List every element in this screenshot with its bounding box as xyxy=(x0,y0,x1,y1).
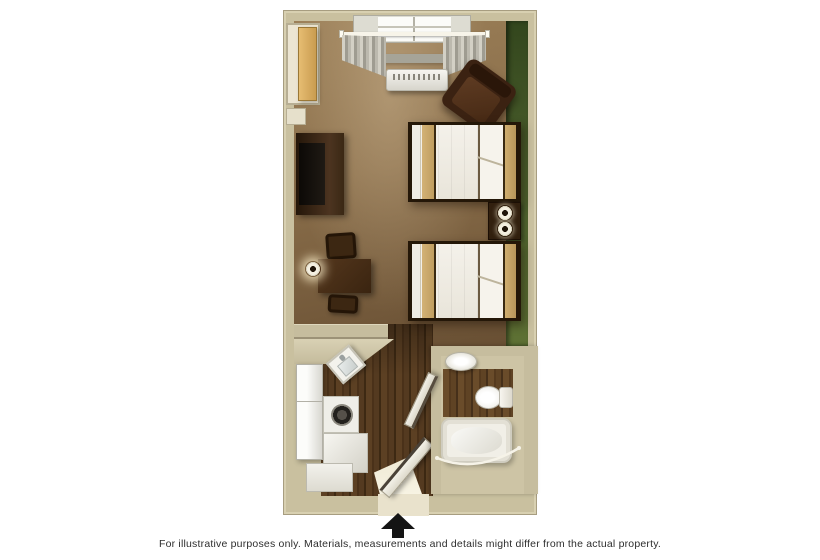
stove xyxy=(323,396,359,433)
table-lamp-icon xyxy=(497,221,513,237)
bed-head-band xyxy=(503,244,516,318)
refrigerator xyxy=(296,364,323,460)
desk xyxy=(318,259,371,293)
television xyxy=(299,143,325,205)
floor-plan xyxy=(283,10,537,515)
curtain-rod xyxy=(341,32,488,36)
vanity-sink xyxy=(445,352,477,371)
desk-lamp-icon xyxy=(305,261,321,277)
bed-accent-band xyxy=(422,125,436,199)
bed-head-band xyxy=(503,125,516,199)
bed-pillows xyxy=(478,125,503,199)
table-lamp-icon xyxy=(497,205,513,221)
base-cabinet xyxy=(306,463,353,492)
burner-icon xyxy=(331,404,353,426)
bed-foot-runner xyxy=(412,125,421,199)
bed-duvet xyxy=(438,125,478,199)
bed-2 xyxy=(408,241,521,321)
ac-unit xyxy=(386,69,448,91)
bed-1 xyxy=(408,122,521,202)
floor-plan-image: For illustrative purposes only. Material… xyxy=(0,0,820,560)
desk-chair xyxy=(325,232,357,260)
window-mullion xyxy=(378,26,451,28)
bathroom xyxy=(431,346,538,494)
ac-grille xyxy=(393,74,443,80)
entrance-arrow-stem xyxy=(392,529,404,538)
closet-door xyxy=(298,27,317,101)
closet xyxy=(286,23,320,105)
shower-curtain-rod xyxy=(431,436,526,476)
disclaimer-caption: For illustrative purposes only. Material… xyxy=(0,538,820,550)
bed-foot-runner xyxy=(412,244,421,318)
bed-pillows xyxy=(478,244,503,318)
toilet-tank xyxy=(499,387,513,408)
kitchen-partition-wall xyxy=(294,324,388,339)
desk-chair xyxy=(328,294,359,314)
toilet xyxy=(475,386,502,409)
shelf-niche xyxy=(286,108,306,125)
entrance-arrow-icon xyxy=(381,513,415,529)
bed-accent-band xyxy=(422,244,436,318)
refrigerator-door-seam xyxy=(297,401,322,402)
bed-duvet xyxy=(438,244,478,318)
window-mullion xyxy=(413,17,415,41)
